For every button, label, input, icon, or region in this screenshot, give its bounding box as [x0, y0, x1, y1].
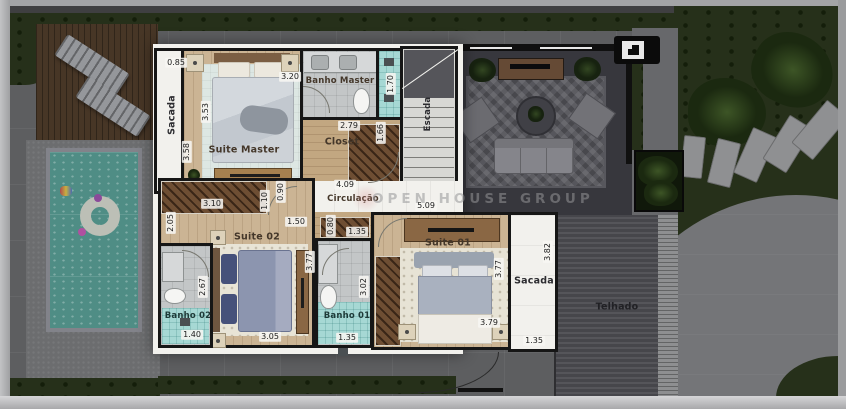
nightstand	[398, 324, 416, 340]
label-suite01: Suite 01	[425, 238, 471, 249]
bed-suite02	[210, 248, 292, 332]
dim-banho01-w: 1.35	[336, 333, 358, 343]
dim-suite01-d: 3.77	[494, 258, 504, 280]
dim-suite02-d: 3.77	[305, 251, 315, 273]
floor-plan-scene: Sacada Suite Master Banho Master Closet …	[0, 0, 846, 409]
dim-banho02-w: 1.40	[181, 330, 203, 340]
dim-banho02-len: 2.67	[198, 276, 208, 298]
roof-edge-rib	[658, 202, 678, 398]
side-hedge	[632, 62, 643, 150]
dim-door-suite02: 1.50	[285, 217, 307, 227]
corner-feature-notch	[628, 45, 632, 49]
label-closet: Closet	[325, 137, 360, 148]
shower-head	[384, 94, 394, 102]
corner-feature	[614, 36, 660, 64]
shower-head	[338, 348, 348, 356]
window-slit	[540, 47, 592, 49]
label-suite02: Suite 02	[234, 232, 280, 243]
console-detail	[428, 228, 474, 232]
gate-line	[458, 388, 503, 392]
toilet	[164, 288, 186, 304]
vanity-counter	[162, 252, 184, 282]
pillow	[218, 62, 250, 78]
duvet	[238, 250, 292, 332]
label-banho-master: Banho Master	[306, 76, 375, 86]
sink	[311, 55, 329, 70]
float-flower	[94, 194, 102, 202]
dim-sacada-left-len: 3.58	[182, 141, 192, 163]
dim-suite01-inner: 3.79	[478, 318, 500, 328]
dim-sacada-left-top: 0.85	[165, 58, 187, 68]
label-sacada-right: Sacada	[514, 276, 554, 287]
driveway	[660, 150, 838, 398]
pool	[46, 148, 142, 332]
dim-closet01-w: 1.35	[346, 227, 368, 237]
pool-toy	[60, 186, 72, 196]
dim-door-master: 1.10	[260, 190, 270, 212]
dim-closet-d: 1.66	[376, 122, 386, 144]
pillow	[221, 254, 237, 284]
dim-closet-w: 2.79	[338, 121, 360, 131]
dim-banho01-len: 3.02	[359, 276, 369, 298]
shower-head	[384, 58, 394, 66]
hedge-bottom-left	[8, 378, 160, 396]
float-flower	[78, 228, 86, 236]
planter-plant	[644, 180, 678, 206]
watermark: OPEN HOUSE GROUP	[372, 191, 594, 207]
nightstand	[281, 54, 299, 72]
window-slit	[470, 47, 512, 49]
dim-sacada-right-w: 1.35	[523, 336, 545, 346]
bed-suite01	[414, 252, 494, 344]
dim-ward02-d: 2.05	[166, 212, 176, 234]
label-escada: Escada	[423, 97, 433, 132]
dim-suite02-w: 3.05	[259, 332, 281, 342]
console-detail	[301, 278, 304, 308]
toilet	[320, 285, 337, 309]
label-banho02: Banho 02	[165, 311, 212, 321]
void-shadow	[455, 46, 632, 215]
pool-float-ring	[80, 196, 120, 236]
dim-suite-master-w: 3.20	[279, 72, 301, 82]
dim-hall-w: 0.90	[276, 181, 286, 203]
label-banho01: Banho 01	[324, 311, 371, 321]
dim-ward02-w: 3.10	[201, 199, 223, 209]
dim-nook-banho01: 0.80	[326, 215, 336, 237]
nightstand	[186, 54, 204, 72]
label-telhado: Telhado	[596, 302, 639, 313]
dresser-detail	[230, 174, 280, 177]
pillow	[221, 294, 237, 324]
label-sacada-left: Sacada	[167, 95, 178, 135]
toilet	[353, 88, 370, 114]
wardrobe-suite02	[161, 181, 267, 214]
sink	[339, 55, 357, 70]
dim-shower-master: 1.70	[386, 73, 396, 95]
label-suite-master: Suite Master	[209, 145, 280, 156]
dim-hall-len: 4.09	[334, 180, 356, 190]
dim-sacada-right-len: 3.82	[543, 241, 553, 263]
living-void	[455, 46, 632, 215]
dim-suite-master-len: 3.53	[201, 101, 211, 123]
hedge-bottom-mid	[158, 376, 456, 394]
